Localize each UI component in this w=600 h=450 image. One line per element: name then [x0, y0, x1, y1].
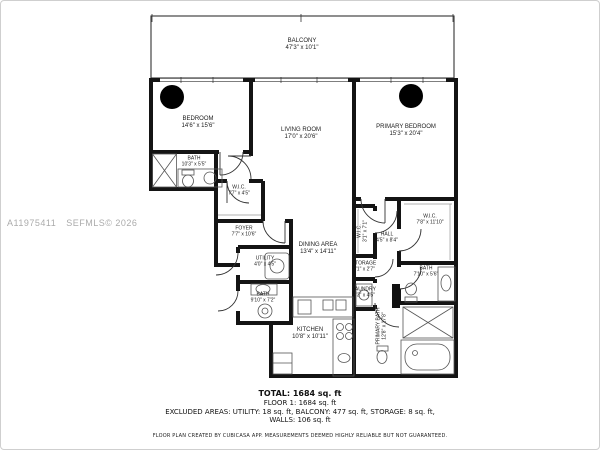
disclaimer-text: FLOOR PLAN CREATED BY CUBICASA APP. MEAS… [1, 433, 599, 439]
column-icon [160, 85, 184, 109]
room-label-wic-small: W.I.C.3'1" x 7'1" [357, 220, 368, 242]
shower-icon [153, 154, 177, 187]
listing-id: A11975411 [7, 218, 56, 228]
room-label-bath: BATH10'3" x 5'5" [182, 156, 207, 167]
toilet-icon [377, 346, 388, 364]
room-label-foyer: FOYER7'7" x 10'6" [232, 226, 257, 237]
kitchen-sink-icon [338, 354, 350, 363]
excluded-areas: EXCLUDED AREAS: UTILITY: 18 sq. ft, BALC… [1, 408, 599, 417]
floor-area: FLOOR 1: 1684 sq. ft [1, 399, 599, 408]
room-label-primary-bath: PRIMARY BATH12'8" x 17'8" [376, 308, 387, 345]
shower-icon [403, 307, 453, 338]
mls-source: SEFMLS© 2026 [66, 218, 137, 228]
room-label-wic: W.I.C.7'7" x 4'5" [228, 185, 250, 196]
room-label-kitchen: KITCHEN10'8" x 10'11" [292, 327, 328, 341]
stove-icon [337, 324, 353, 340]
bathtub-icon [401, 340, 454, 374]
room-label-primary-bedroom: PRIMARY BEDROOM15'3" x 20'4" [376, 124, 436, 138]
fridge-icon [273, 353, 292, 374]
room-label-bath-3: BATH9'10" x 7'2" [251, 292, 276, 303]
area-summary: TOTAL: 1684 sq. ft FLOOR 1: 1684 sq. ft … [1, 389, 599, 439]
room-label-hall: HALL4'5" x 8'4" [376, 232, 398, 243]
room-label-dining-area: DINING AREA13'4" x 14'11" [299, 242, 338, 256]
room-label-utility: UTILITY4'0" x 4'5" [254, 256, 276, 267]
toilet-icon [258, 304, 272, 318]
vanity-icon [438, 267, 455, 301]
room-label-laundry: LAUNDRY3'3" x 4'5" [352, 287, 376, 298]
room-label-wic-primary: W.I.C.7'8" x 11'10" [416, 214, 443, 225]
room-label-bath-2: BATH7'10" x 5'6" [414, 266, 439, 277]
column-icon [399, 84, 423, 108]
wall-chase [392, 284, 400, 308]
room-label-balcony: BALCONY47'3" x 10'1" [286, 38, 319, 52]
room-label-living-room: LIVING ROOM17'0" x 20'6" [281, 127, 321, 141]
toilet-icon [182, 170, 194, 187]
closet-rod-icon [404, 204, 452, 260]
mls-watermark: A11975411SEFMLS© 2026 [7, 218, 137, 228]
walls-area: WALLS: 106 sq. ft [1, 416, 599, 425]
total-area: TOTAL: 1684 sq. ft [1, 389, 599, 399]
room-label-bedroom: BEDROOM14'6" x 15'6" [182, 116, 215, 130]
floorplan-canvas: BALCONY47'3" x 10'1" BEDROOM14'6" x 15'6… [0, 0, 600, 450]
columns [160, 84, 423, 109]
room-label-storage: STORAGE3'1" x 2'7" [352, 261, 376, 272]
